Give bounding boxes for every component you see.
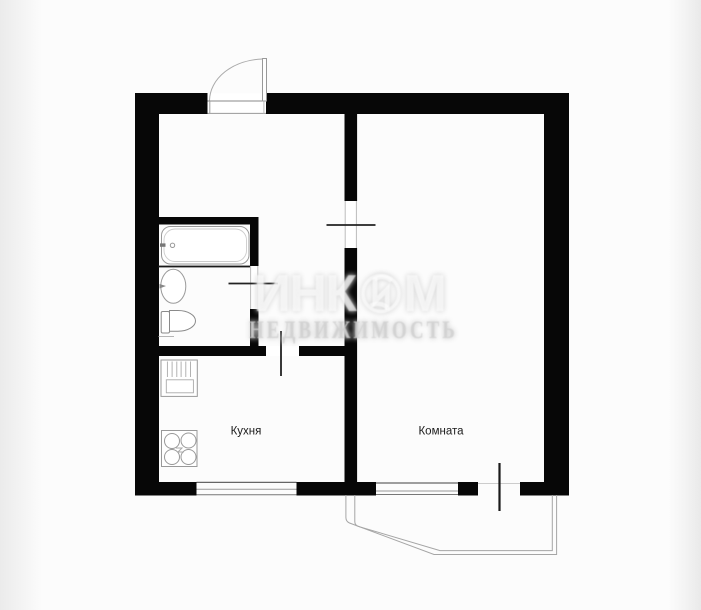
svg-text:ИНК: ИНК xyxy=(254,265,358,323)
svg-text:М: М xyxy=(404,265,447,323)
svg-text:Комната: Комната xyxy=(418,426,464,438)
svg-text:Кухня: Кухня xyxy=(231,426,262,438)
svg-text:НЕДВИЖИМОСТЬ: НЕДВИЖИМОСТЬ xyxy=(249,315,458,343)
